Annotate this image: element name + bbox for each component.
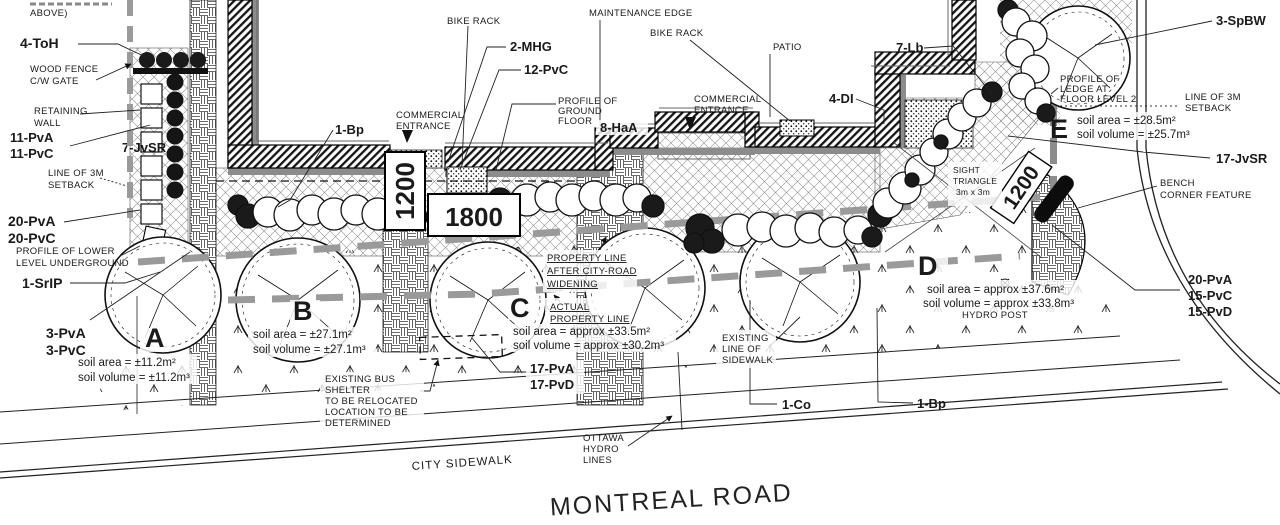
actual-property-label-2: PROPERTY LINE [550, 314, 630, 325]
plant-code-1srip: 1-SrIP [22, 275, 62, 291]
zone-c-letter: C [510, 293, 530, 323]
hydro-post-label: HYDRO POST [962, 310, 1028, 321]
plant-code-17pvd: 17-PvD [530, 377, 574, 392]
existing-sidewalk-note-3: SIDEWALK [722, 355, 774, 366]
zone-c-area: soil area = approx ±33.5m² [513, 326, 650, 338]
profile-ledge-label-3: FLOOR LEVEL 2 [1060, 94, 1136, 105]
ottawa-hydro-note: OTTAWA [583, 433, 624, 444]
plant-code-11pvc: 11-PvC [10, 146, 54, 161]
landscape-site-plan: 7-JvSR 4-JvSR [0, 0, 1280, 525]
commercial-entrance-left: COMMERCIAL [396, 110, 463, 121]
existing-sidewalk-note-2: LINE OF [722, 344, 761, 355]
profile-lower-label: PROFILE OF LOWER [16, 246, 115, 257]
plant-code-1bp-bottom: 1-Bp [917, 396, 946, 411]
plant-code-20pvc: 20-PvC [8, 230, 55, 246]
setback-right-label-2: SETBACK [1185, 103, 1232, 114]
bus-shelter-note-4: LOCATION TO BE [325, 407, 408, 418]
dimension-center-value: 1800 [445, 202, 503, 232]
dimension-left-value: 1200 [390, 162, 420, 220]
road-name-label: MONTREAL ROAD [549, 479, 793, 522]
zone-a-area: soil area = ±11.2m² [78, 357, 176, 369]
zone-b-volume: soil volume = ±27.1m³ [253, 344, 366, 356]
wood-fence-label-2: C/W GATE [30, 76, 79, 87]
bike-rack-pad-2 [780, 120, 814, 136]
dimension-left: 1200 [385, 152, 425, 230]
sight-triangle-label-3: 3m x 3m [956, 187, 990, 197]
plant-code-15pvc: 15-PvC [1188, 288, 1233, 303]
patio-label: PATIO [773, 42, 802, 53]
plant-code-8haa: 8-HaA [600, 120, 638, 135]
ottawa-hydro-note-3: LINES [583, 455, 612, 466]
plant-code-12pvc: 12-PvC [524, 62, 569, 77]
actual-property-label: ACTUAL [550, 302, 589, 313]
setback-left-label: LINE OF 3M [48, 168, 104, 179]
zone-b-area: soil area = ±27.1m² [253, 329, 352, 341]
zone-e-letter: E [1050, 114, 1068, 144]
plant-code-11pva: 11-PvA [10, 130, 54, 145]
plant-code-3pvc: 3-PvC [46, 342, 86, 358]
plant-code-15pvd: 15-PvD [1188, 304, 1232, 319]
maintenance-edge-label: MAINTENANCE EDGE [589, 8, 693, 19]
plant-code-3pva: 3-PvA [46, 325, 86, 341]
retaining-wall-blocks [141, 84, 166, 248]
bus-shelter-note-3: TO BE RELOCATED [325, 396, 418, 407]
plant-code-20pva-right: 20-PvA [1188, 272, 1233, 287]
profile-ground-label-3: FLOOR [558, 116, 592, 127]
property-widening-label: PROPERTY LINE [547, 253, 627, 264]
bench-label-2: CORNER FEATURE [1160, 190, 1252, 201]
bus-shelter-note-2: SHELTER [325, 385, 370, 396]
bike-rack-label-2: BIKE RACK [650, 28, 704, 39]
setback-left-label-2: SETBACK [48, 180, 95, 191]
plant-code-20pva: 20-PvA [8, 213, 55, 229]
zone-c-volume: soil volume = approx ±30.2m³ [513, 340, 664, 352]
plant-code-1bp-top: 1-Bp [335, 122, 364, 137]
plant-code-17jvsr: 17-JvSR [1216, 151, 1268, 166]
zone-a-volume: soil volume = ±11.2m³ [78, 372, 190, 384]
zone-b-letter: B [293, 296, 313, 326]
city-sidewalk-label: CITY SIDEWALK [411, 454, 513, 473]
zone-a-letter: A [145, 323, 165, 353]
bench-label: BENCH [1160, 178, 1195, 189]
plant-code-3spbw: 3-SpBW [1216, 13, 1267, 28]
plant-code-4toh: 4-ToH [20, 35, 59, 51]
wood-fence [133, 68, 208, 74]
plan-canvas: 7-JvSR 4-JvSR [0, 0, 1280, 525]
sight-triangle-label: SIGHT [953, 165, 980, 175]
zone-e-volume: soil volume = ±25.7m³ [1077, 129, 1190, 141]
building-outline [228, 0, 976, 170]
setback-right-label: LINE OF 3M [1185, 92, 1241, 103]
commercial-entrance-right-2: ENTRANCE [694, 105, 749, 116]
retaining-wall-label-2: WALL [34, 118, 61, 129]
wood-fence-label: WOOD FENCE [30, 64, 98, 75]
existing-sidewalk-note: EXISTING [722, 333, 769, 344]
dimension-center: 1800 [428, 194, 520, 236]
plant-code-1co: 1-Co [782, 397, 811, 412]
plant-code-4di: 4-DI [829, 91, 854, 106]
property-widening-label-3: WIDENING [547, 279, 598, 290]
bus-shelter-note-5: DETERMINED [325, 418, 391, 429]
zone-e-area: soil area = ±28.5m² [1077, 115, 1176, 127]
bus-shelter-note: EXISTING BUS [325, 374, 395, 385]
plant-code-17pva: 17-PvA [530, 361, 575, 376]
plant-code-7lb: 7-Lb [896, 40, 924, 55]
zone-d-volume: soil volume = approx ±33.8m³ [923, 298, 1074, 310]
zone-d-area: soil area = approx ±37.6m² [927, 284, 1064, 296]
retaining-wall-label: RETAINING [34, 106, 88, 117]
ottawa-hydro-note-2: HYDRO [583, 444, 619, 455]
sight-triangle-label-2: TRIANGLE [953, 176, 997, 186]
above-label: ABOVE) [30, 8, 68, 19]
bike-rack-label-1: BIKE RACK [447, 16, 501, 27]
commercial-entrance-right: COMMERCIAL [694, 94, 761, 105]
property-widening-label-2: AFTER CITY-ROAD [547, 266, 637, 277]
commercial-entrance-left-2: ENTRANCE [396, 121, 451, 132]
zone-d-letter: D [918, 251, 938, 281]
plant-code-2mhg: 2-MHG [510, 39, 552, 54]
bike-rack-pad-1 [447, 167, 487, 193]
profile-lower-label-2: LEVEL UNDERGROUND [16, 258, 129, 269]
